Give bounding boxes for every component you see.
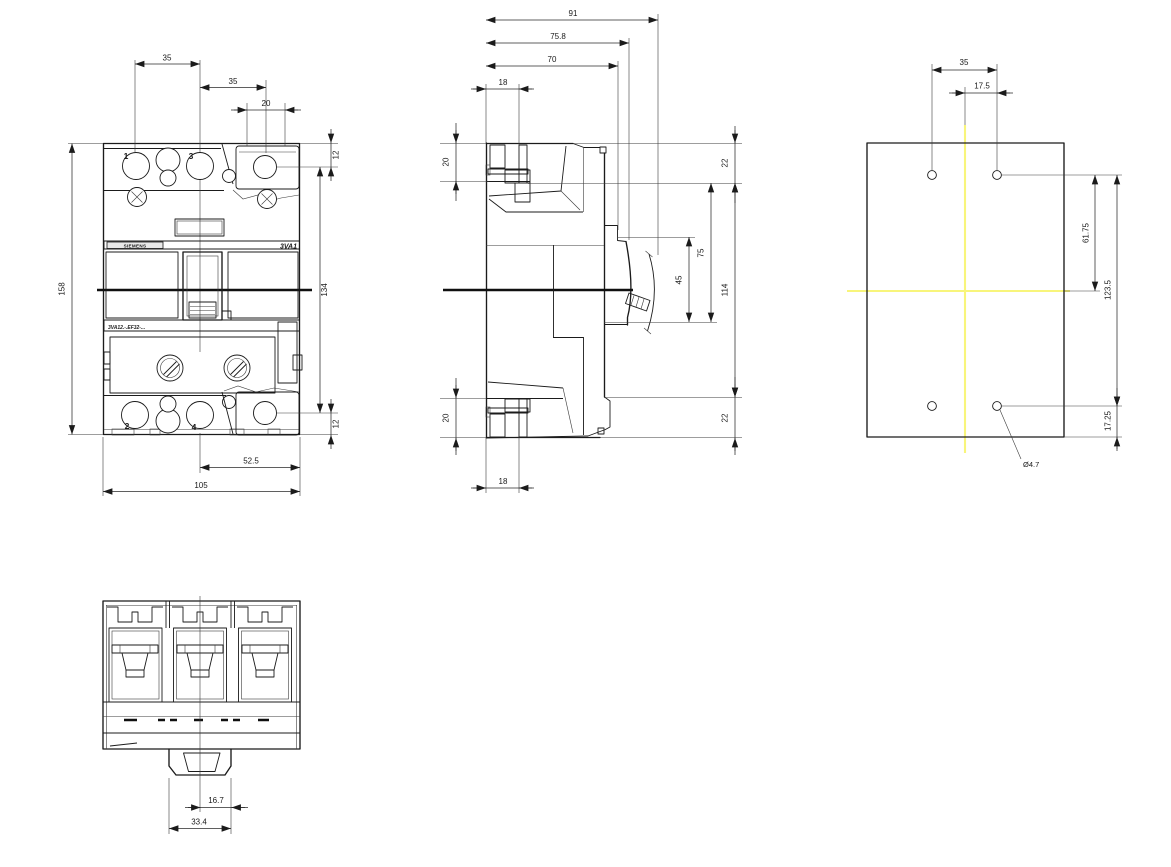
dim-hole-to-centerline: 61.75 [1082,175,1096,291]
front-toggle-area [106,252,298,320]
drawing-sheet: 1 3 SIEMENS 3VA1 [0,0,1171,867]
dim-label-75-8: 75.8 [550,32,566,41]
dim-label-16-7: 16.7 [208,796,224,805]
dim-hole-pitch: 35 [932,58,997,70]
bottom-body-outline [103,601,300,749]
side-body-outline [443,143,633,438]
side-terminal-top [486,145,583,212]
front-brand-band: SIEMENS 3VA1 [104,241,300,251]
dim-front-aux-top-offset: 12 [277,129,341,181]
drilling-extension-lines [932,64,1122,437]
dim-side-mid-height: 114 [721,183,736,397]
dim-label-35a: 35 [163,54,172,63]
dim-side-terminal-height-bottom: 20 [442,378,457,455]
dim-label-105: 105 [194,481,208,490]
series-label: 3VA1 [280,244,297,251]
dim-hole-bottom-offset: 17.25 [1104,388,1118,451]
mounting-hole-top-left [928,171,937,180]
front-type-band: 3VA12.-.EF32-... [104,311,300,331]
dim-label-20-top: 20 [442,157,451,166]
handle-swing-arc [648,254,655,331]
dim-label-12-top: 12 [332,150,341,159]
dim-label-35b: 35 [229,77,238,86]
dim-side-bottom-offset: 22 [721,377,736,455]
dim-label-12-bottom: 12 [332,419,341,428]
dim-front-aux-bottom-offset: 12 [277,399,341,449]
dim-label-70: 70 [548,55,557,64]
dim-front-height: 158 [58,144,104,435]
terminal-hole-4 [187,402,214,429]
mounting-hole-bottom-right [993,402,1002,411]
dim-side-terminal-depth-bottom: 18 [471,477,534,488]
dim-side-handle-window: 45 [675,237,690,322]
front-rating-window [175,219,224,236]
mounting-hole-bottom-left [928,402,937,411]
keyhole-top-large [156,148,180,172]
dim-label-91: 91 [569,9,578,18]
dim-front-half-width: 52.5 [200,437,300,472]
dim-label-17-25: 17.25 [1104,410,1113,431]
dim-label-33-4: 33.4 [191,818,207,827]
dim-side-terminal-height-top: 20 [442,123,457,201]
bottom-mounting-band [103,702,300,746]
aux-terminal-hole-bottom [254,402,277,425]
type-code-label: 3VA12.-.EF32-... [108,325,145,331]
dim-hole-half-pitch: 17.5 [949,82,1013,94]
front-rotary-adjusters [104,322,302,393]
drilling-plan: 35 17.5 61.75 123.5 17.25 Ø4.7 [847,58,1122,469]
bottom-view: 16.7 33.4 [103,596,300,834]
keyhole-bottom-large [156,409,180,433]
hole-diameter-callout: Ø4.7 [1000,410,1039,469]
dim-hole-vertical-pitch: 123.5 [1104,175,1118,406]
dim-label-134: 134 [320,283,329,297]
dim-label-18-bottom: 18 [499,477,508,486]
keyhole-top-small [160,170,176,186]
dim-label-75: 75 [697,248,706,257]
dim-label-123-5: 123.5 [1104,279,1113,300]
dim-side-depth-total: 91 [486,9,658,20]
front-view: 1 3 SIEMENS 3VA1 [58,54,341,497]
side-body-internal [486,245,604,435]
dim-side-terminal-depth-top: 18 [471,78,534,89]
pole-label-3: 3 [189,151,194,161]
toggle-tip-bottom [184,753,221,772]
dim-label-20: 20 [262,99,271,108]
side-dimensions: 91 75.8 70 18 20 [442,9,736,488]
dim-label-61-75: 61.75 [1082,222,1091,243]
dim-side-cover-height: 75 [697,183,712,322]
dim-front-pole-pitch-right: 35 [200,77,266,153]
dim-label-hole-diameter: Ø4.7 [1023,460,1039,469]
dim-side-depth-cover: 75.8 [486,32,629,43]
dim-label-114: 114 [721,283,730,296]
dim-label-17-5: 17.5 [974,82,990,91]
dim-front-inner-height: 134 [320,167,329,413]
dim-label-158: 158 [58,282,67,296]
side-terminal-bottom [486,382,573,437]
dim-label-52-5: 52.5 [243,457,259,466]
brand-label: SIEMENS [124,244,147,249]
dim-label-45: 45 [675,275,684,284]
dim-side-top-offset: 22 [721,126,736,203]
dim-front-width: 105 [103,437,300,496]
side-view: 91 75.8 70 18 20 [440,9,742,493]
dim-front-pole-pitch-left: 35 [135,54,200,153]
pole-label-2: 2 [125,421,130,431]
mounting-hole-top-right [993,171,1002,180]
dimension-drawing-svg: 1 3 SIEMENS 3VA1 [0,0,1171,867]
aux-terminal-hole-top [254,156,277,179]
dim-label-22-bottom: 22 [721,413,730,422]
pole-label-4: 4 [192,422,197,432]
toggle-grip [189,302,216,318]
dim-label-20-bottom: 20 [442,413,451,422]
dim-label-18-top: 18 [499,78,508,87]
pole-label-1: 1 [124,151,129,161]
dim-label-35-drill: 35 [960,58,969,67]
keyhole-bottom-small [160,396,176,412]
dim-label-22-top: 22 [721,158,730,167]
dim-side-depth-front: 70 [486,55,618,66]
